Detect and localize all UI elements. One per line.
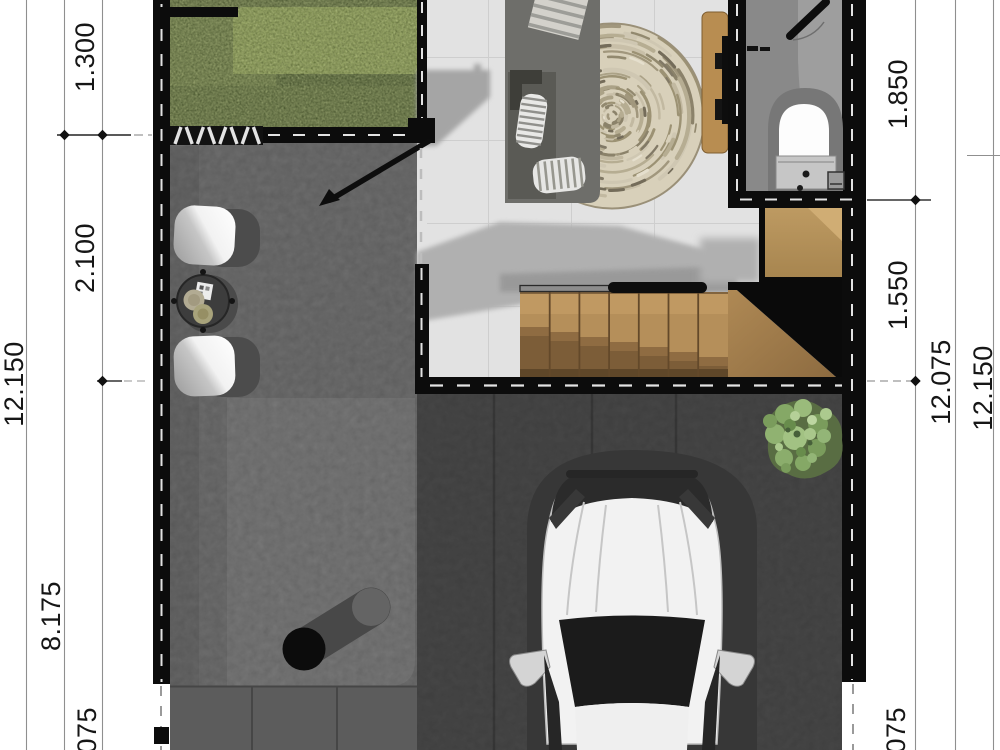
svg-text:1.850: 1.850 xyxy=(883,59,913,129)
svg-text:1.075: 1.075 xyxy=(72,707,102,750)
svg-text:12.150: 12.150 xyxy=(968,345,998,431)
svg-text:8.175: 8.175 xyxy=(36,581,66,651)
svg-text:1.300: 1.300 xyxy=(70,22,100,92)
svg-text:1.550: 1.550 xyxy=(883,260,913,330)
svg-text:12.150: 12.150 xyxy=(0,341,29,427)
svg-text:12.075: 12.075 xyxy=(926,339,956,425)
svg-text:1.075: 1.075 xyxy=(881,707,911,750)
svg-text:2.100: 2.100 xyxy=(70,223,100,293)
